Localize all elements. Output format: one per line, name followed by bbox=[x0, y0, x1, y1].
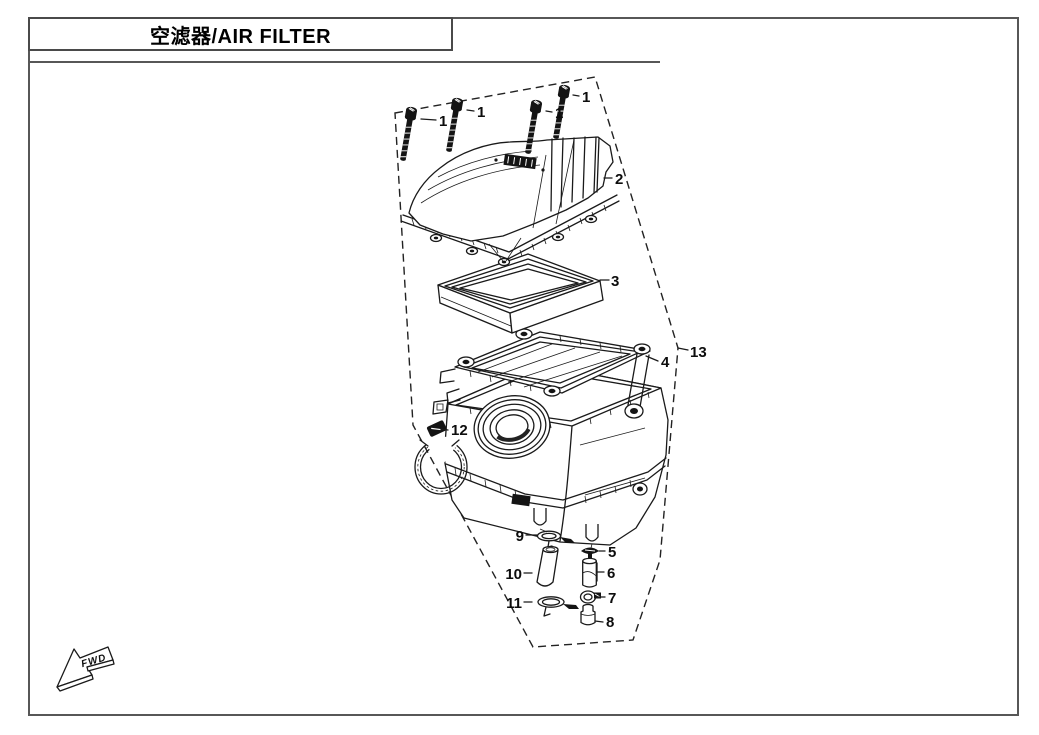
callout-9: 9 bbox=[516, 528, 524, 545]
callout-2: 2 bbox=[615, 171, 623, 188]
air-filter-cover bbox=[401, 137, 619, 266]
callout-1d: 1 bbox=[582, 89, 590, 106]
callout-1a: 1 bbox=[439, 113, 447, 130]
drain-spout-right bbox=[586, 524, 598, 541]
callout-1b: 1 bbox=[477, 104, 485, 121]
callout-8: 8 bbox=[606, 614, 614, 631]
callout-10: 10 bbox=[505, 566, 522, 583]
bolt-1a bbox=[397, 106, 417, 162]
callout-12: 12 bbox=[451, 422, 468, 439]
callout-11: 11 bbox=[506, 595, 522, 612]
callout-13: 13 bbox=[690, 344, 707, 361]
callout-4: 4 bbox=[661, 354, 670, 371]
intake-boot-10 bbox=[537, 547, 558, 587]
breather-tube-6 bbox=[583, 558, 597, 587]
callout-5: 5 bbox=[608, 544, 616, 561]
callout-7: 7 bbox=[608, 590, 616, 607]
callout-6: 6 bbox=[607, 565, 615, 582]
fwd-arrow: FWD bbox=[57, 647, 114, 691]
clamp-11 bbox=[538, 597, 579, 616]
exploded-view-drawing: 1 1 1 1 2 3 4 5 6 7 8 9 10 11 12 13 FWD bbox=[0, 0, 1039, 735]
callout-3: 3 bbox=[611, 273, 619, 290]
drain-spout-left bbox=[534, 508, 546, 525]
clip-5 bbox=[581, 548, 599, 559]
plug-8 bbox=[581, 605, 595, 625]
parts-catalog-page: 空滤器/AIR FILTER bbox=[0, 0, 1039, 735]
filter-element bbox=[438, 254, 603, 333]
callout-1c: 1 bbox=[555, 105, 563, 122]
